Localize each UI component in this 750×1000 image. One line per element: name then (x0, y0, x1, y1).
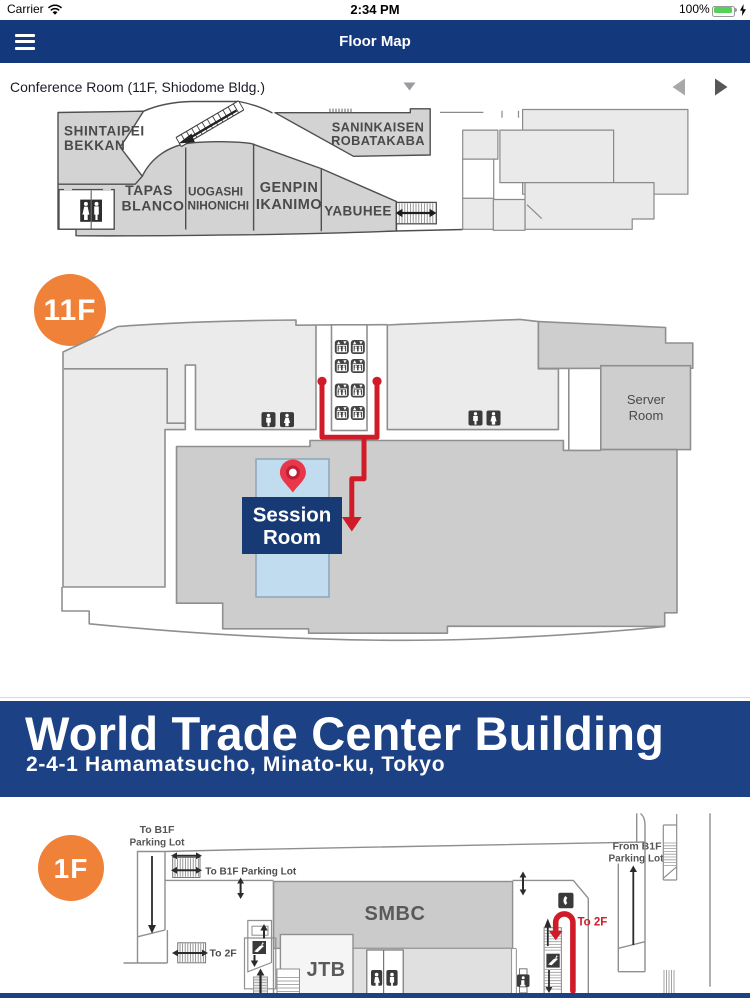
svg-text:SMBC: SMBC (365, 903, 426, 925)
svg-text:Server: Server (627, 392, 666, 407)
svg-text:To 2F: To 2F (578, 917, 608, 929)
svg-text:BEKKAN: BEKKAN (64, 138, 125, 153)
svg-text:To 2F: To 2F (210, 948, 238, 960)
svg-text:To B1F Parking Lot: To B1F Parking Lot (205, 867, 297, 878)
svg-text:To B1F: To B1F (140, 824, 175, 836)
svg-text:Session: Session (253, 504, 332, 527)
svg-text:SHINTAIPEI: SHINTAIPEI (64, 124, 145, 139)
svg-text:Parking Lot: Parking Lot (608, 854, 664, 865)
svg-text:ROBATAKABA: ROBATAKABA (331, 133, 425, 148)
svg-text:Room: Room (629, 408, 664, 423)
svg-text:YABUHEE: YABUHEE (324, 204, 392, 219)
svg-text:TAPAS: TAPAS (125, 182, 173, 198)
svg-text:Parking Lot: Parking Lot (129, 838, 185, 849)
svg-text:JTB: JTB (307, 959, 346, 981)
svg-text:From B1F: From B1F (612, 841, 662, 853)
svg-text:GENPIN: GENPIN (260, 180, 319, 196)
svg-text:Room: Room (263, 526, 321, 549)
svg-text:IKANIMO: IKANIMO (256, 197, 322, 213)
svg-text:BLANCO: BLANCO (122, 198, 185, 214)
svg-text:UOGASHI: UOGASHI (188, 185, 243, 199)
svg-text:NIHONICHI: NIHONICHI (187, 199, 249, 213)
